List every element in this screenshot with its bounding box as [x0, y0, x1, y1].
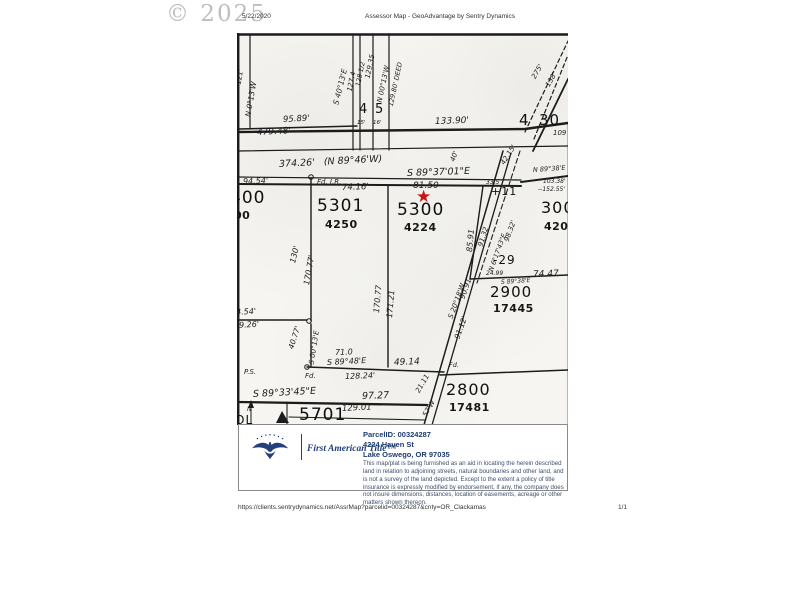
- map-label: 4: [359, 103, 368, 116]
- map-label: +11: [491, 186, 517, 197]
- map-label: 4250: [325, 219, 358, 230]
- map-label: -29: [493, 254, 516, 266]
- map-label: 24.99: [486, 271, 503, 277]
- logo-divider: [301, 434, 302, 460]
- map-label: 79.26': [237, 321, 259, 330]
- map-label: 5: [375, 103, 384, 116]
- print-footer-url: https://clients.sentrydynamics.net/AssrM…: [238, 504, 486, 511]
- map-label: 5701: [299, 407, 346, 424]
- print-header-title: Assessor Map - GeoAdvantage by Sentry Dy…: [240, 13, 640, 20]
- disclaimer-text: This map/plat is being furnished as an a…: [363, 460, 565, 507]
- map-label: 74.47: [533, 270, 559, 280]
- map-label: 128.24': [345, 372, 375, 381]
- map-label: 479.48': [257, 127, 291, 138]
- address-line1: 4224 Haven St: [363, 440, 565, 450]
- map-label: 4208: [544, 221, 568, 232]
- map-label: P.S.: [244, 369, 256, 376]
- map-label: 16': [373, 121, 382, 127]
- map-label: 4224: [404, 222, 437, 233]
- map-label: 97.27: [362, 391, 390, 401]
- address-line2: Lake Oswego, OR 97035: [363, 450, 565, 460]
- subject-parcel-star: ★: [416, 188, 431, 205]
- map-label: 94.54': [243, 177, 268, 186]
- plat-map-image: 121'N 0°13'W95.89'479.48'S 40°13'E127.41…: [237, 33, 568, 425]
- map-label: 30: [539, 113, 560, 128]
- map-label: 3000: [541, 200, 568, 216]
- map-label: 95.89': [283, 115, 310, 125]
- map-label: 2900: [490, 285, 532, 300]
- map-label: 74.16': [342, 183, 369, 192]
- map-label: 129.01: [342, 403, 372, 413]
- map-label: 94.54': [237, 308, 256, 317]
- map-label: 109: [553, 130, 566, 137]
- print-footer-page-number: 1/1: [618, 504, 627, 511]
- map-label: 17481: [449, 402, 490, 413]
- map-label: Fd.: [449, 362, 459, 369]
- map-label: 49.14: [394, 358, 420, 368]
- title-company-info-panel: First American Title™ ParcelID: 00324287…: [238, 424, 568, 491]
- map-label: S 89°37'01"E: [407, 167, 470, 179]
- map-label: 400: [237, 190, 265, 207]
- map-label: 15': [357, 121, 366, 127]
- map-label: 133.90': [435, 117, 469, 127]
- map-label: 17445: [493, 303, 534, 314]
- map-label: --152.55': [538, 187, 565, 193]
- map-label: 2800: [446, 382, 491, 398]
- map-label: 71.0: [335, 348, 353, 357]
- map-label: Fd.: [305, 373, 316, 380]
- parcel-id: ParcelID: 00324287: [363, 430, 565, 440]
- map-label: 00: [237, 210, 250, 221]
- map-label: Fd. I.R.: [317, 179, 341, 186]
- assessor-map-page: © 2025 5/22/2020 Assessor Map - GeoAdvan…: [0, 0, 800, 600]
- map-label: 103.38': [543, 179, 566, 185]
- map-label: 5301: [317, 198, 364, 215]
- map-label: 4: [519, 113, 530, 128]
- first-american-eagle-logo: [247, 433, 293, 461]
